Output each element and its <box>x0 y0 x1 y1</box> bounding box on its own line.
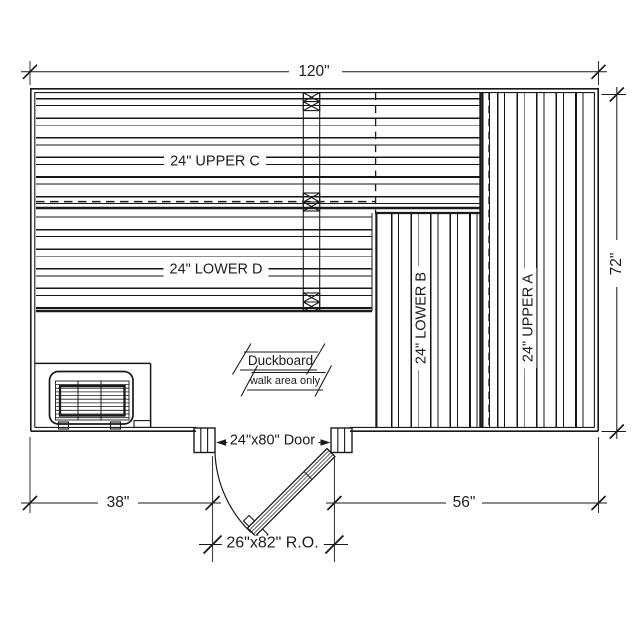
door-jamb-right <box>331 428 352 453</box>
duckboard-note: walk area only <box>250 376 320 388</box>
door-size-label: 24"x80" Door <box>227 433 318 448</box>
door-swing-arc <box>215 453 251 533</box>
heater-foot-right <box>111 422 121 429</box>
cross-brace-top <box>303 93 319 111</box>
heater-foot-left <box>59 422 69 429</box>
arrow-right <box>321 439 331 445</box>
bench-lower-b-label: 24" LOWER B <box>414 266 429 370</box>
dim-depth-label: 72" <box>608 247 624 280</box>
heater <box>35 363 151 429</box>
sauna-floor-plan: 120" 72" 24" UPPER C 24" LOWER D 24" LOW… <box>0 0 640 640</box>
duckboard-title: Duckboard <box>248 354 313 368</box>
support-column <box>303 93 319 311</box>
rough-opening-label: 26"x82" R.O. <box>221 536 323 553</box>
bench-upper-a-label: 24" UPPER A <box>521 268 536 368</box>
dim-56-label: 56" <box>448 494 481 510</box>
dim-width-label: 120" <box>293 63 334 79</box>
door-jamb-left <box>194 428 215 453</box>
door-leaf <box>242 443 340 541</box>
dim-38-label: 38" <box>102 494 135 510</box>
duckboard-callout <box>233 344 332 397</box>
heater-grille <box>56 381 130 420</box>
arrow-left <box>216 439 226 445</box>
door-knob-outside <box>244 516 255 527</box>
bench-lower-d-label: 24" LOWER D <box>164 262 269 277</box>
cross-brace-bottom <box>303 293 319 311</box>
bench-upper-c-label: 24" UPPER C <box>164 154 266 169</box>
